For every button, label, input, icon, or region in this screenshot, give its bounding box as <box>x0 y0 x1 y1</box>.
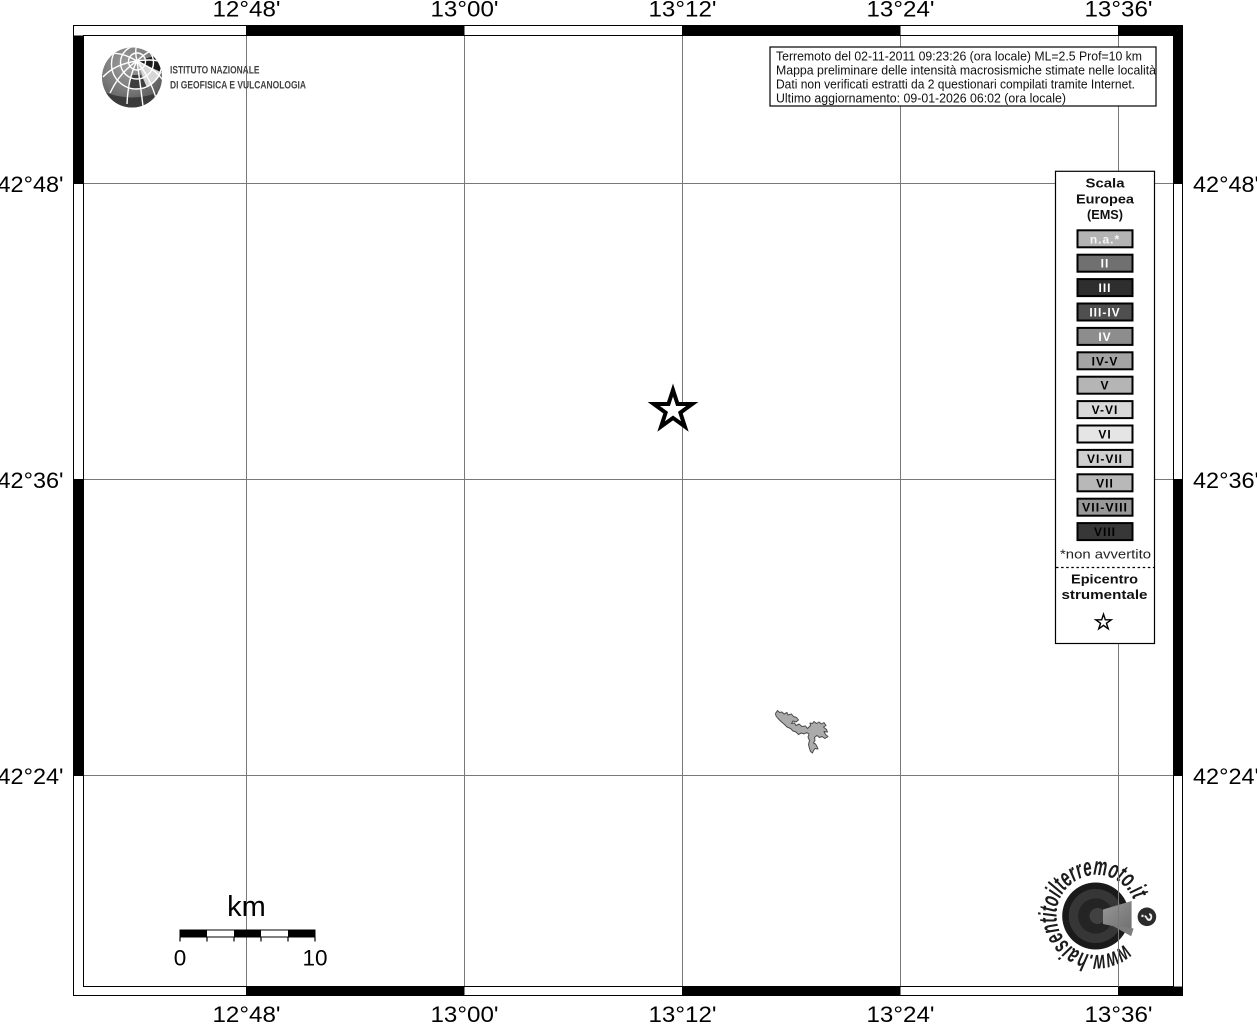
svg-text:ISTITUTO NAZIONALE: ISTITUTO NAZIONALE <box>170 65 260 77</box>
svg-text:n.a.*: n.a.* <box>1090 232 1120 246</box>
svg-text:IV-V: IV-V <box>1092 354 1119 368</box>
svg-text:Scala: Scala <box>1086 177 1126 191</box>
svg-text:Mappa preliminare delle intens: Mappa preliminare delle intensità macros… <box>776 63 1157 78</box>
svg-text:0: 0 <box>174 946 187 971</box>
svg-text:VII-VIII: VII-VIII <box>1082 501 1128 515</box>
svg-text:13°24': 13°24' <box>867 0 935 22</box>
svg-text:13°36': 13°36' <box>1085 0 1153 22</box>
svg-text:12°48': 12°48' <box>213 0 281 22</box>
svg-text:42°48': 42°48' <box>0 172 64 197</box>
svg-text:13°24': 13°24' <box>867 1002 935 1024</box>
svg-text:42°48': 42°48' <box>1193 172 1257 197</box>
svg-text:V: V <box>1100 379 1109 393</box>
svg-text:42°24': 42°24' <box>1193 764 1257 789</box>
svg-text:VIII: VIII <box>1094 525 1116 539</box>
svg-text:10: 10 <box>302 946 327 971</box>
svg-text:III: III <box>1098 281 1111 295</box>
svg-text:42°36': 42°36' <box>1193 468 1257 493</box>
svg-text:II: II <box>1101 257 1110 271</box>
svg-text:13°12': 13°12' <box>649 1002 717 1024</box>
svg-text:VI: VI <box>1098 428 1111 442</box>
svg-text:*non avvertito: *non avvertito <box>1060 548 1151 562</box>
svg-text:13°36': 13°36' <box>1085 1002 1153 1024</box>
svg-text:Epicentro: Epicentro <box>1071 572 1138 587</box>
svg-text:V-VI: V-VI <box>1092 403 1119 417</box>
svg-text:km: km <box>227 891 266 923</box>
svg-text:13°12': 13°12' <box>649 0 717 22</box>
svg-text:13°00': 13°00' <box>431 1002 499 1024</box>
svg-text:Dati non verificati estratti d: Dati non verificati estratti da 2 questi… <box>776 77 1135 92</box>
svg-text:42°36': 42°36' <box>0 468 64 493</box>
svg-text:strumentale: strumentale <box>1062 587 1148 602</box>
svg-text:Europea: Europea <box>1076 192 1135 206</box>
svg-text:12°48': 12°48' <box>213 1002 281 1024</box>
svg-text:VI-VII: VI-VII <box>1087 452 1123 466</box>
svg-text:III-IV: III-IV <box>1089 306 1120 320</box>
svg-text:IV: IV <box>1098 330 1111 344</box>
svg-text:(EMS): (EMS) <box>1087 208 1123 222</box>
svg-text:Ultimo aggiornamento: 09-01-20: Ultimo aggiornamento: 09-01-2026 06:02 (… <box>776 90 1066 105</box>
svg-text:13°00': 13°00' <box>431 0 499 22</box>
svg-text:Terremoto del 02-11-2011 09:23: Terremoto del 02-11-2011 09:23:26 (ora l… <box>776 49 1142 64</box>
svg-text:VII: VII <box>1096 476 1114 490</box>
svg-text:DI GEOFISICA E VULCANOLOGIA: DI GEOFISICA E VULCANOLOGIA <box>170 80 306 92</box>
svg-text:42°24': 42°24' <box>0 764 64 789</box>
